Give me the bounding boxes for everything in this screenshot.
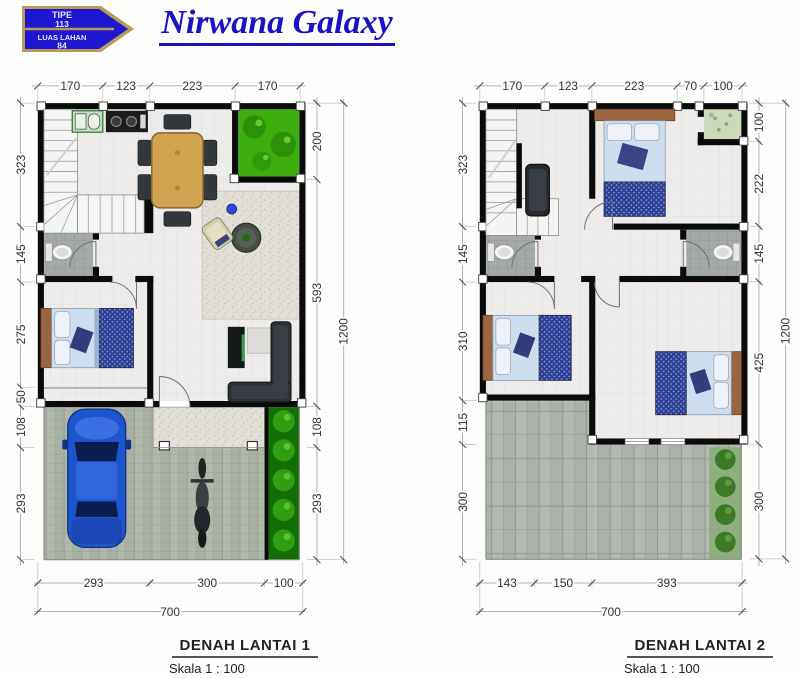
dim-label: 425 [752,352,766,372]
dining-table [152,133,203,208]
dim-label: 150 [553,576,573,590]
toilet [45,243,72,261]
bed-right [656,352,742,415]
dim-label: 223 [182,79,202,93]
dim-label: 50 [14,390,28,404]
dim-label-total: 700 [601,605,621,619]
roof-deck-left [486,401,595,560]
dim-label-total: 700 [160,605,180,619]
dim-label: 323 [456,154,470,174]
dim-label: 300 [197,576,217,590]
dim-label: 293 [310,493,324,513]
rug [247,328,271,353]
dim-label: 100 [713,79,733,93]
dim-label: 143 [497,576,517,590]
plan1-title: DENAH LANTAI 1 [172,637,319,658]
dim-label: 108 [310,417,324,437]
dim-label: 100 [274,576,294,590]
dim-label: 145 [752,243,766,263]
dim-label: 170 [502,79,522,93]
project-title: Nirwana Galaxy [146,4,408,42]
floor-plan-1: 170 123 223 170 323 145 275 50 108 293 2… [2,58,404,622]
hall-sofa [526,164,550,216]
car [62,409,131,547]
dim-label: 293 [84,576,104,590]
planter-box [704,109,741,139]
garden [238,109,299,176]
brand-badge: TIPE 113 LUAS LAHAN 84 [22,1,134,53]
dim-label: 123 [116,79,136,93]
dim-label: 170 [60,79,80,93]
toilet-left [487,243,514,261]
dim-label: 300 [456,492,470,512]
badge-luas-value: 84 [57,41,67,51]
blue-vase [227,204,237,214]
side-garden-plants [268,407,299,560]
dim-label: 200 [310,131,324,151]
dim-label-total: 1200 [779,317,793,344]
kitchen-counter [72,111,148,132]
dim-label: 323 [14,154,28,174]
toilet-right [713,243,740,261]
dim-label: 100 [752,112,766,132]
dim-label: 393 [657,576,677,590]
bed-left [483,315,571,380]
plan2-title: DENAH LANTAI 2 [627,637,774,658]
dim-label: 70 [684,79,698,93]
plan2-scale: Skala 1 : 100 [624,661,782,676]
dim-label: 222 [752,174,766,194]
dim-label: 170 [258,79,278,93]
dim-label: 310 [456,331,470,351]
plan1-scale: Skala 1 : 100 [169,661,327,676]
badge-tipe-value: 113 [55,19,69,29]
dim-label: 300 [752,491,766,511]
dim-label: 115 [456,413,470,432]
dim-label: 223 [624,79,644,93]
bed-top [595,109,675,216]
dim-label: 108 [14,417,28,437]
plan2-caption: DENAH LANTAI 2 Skala 1 : 100 [618,637,782,676]
dim-label: 145 [14,244,28,264]
floor-plan-2: 170 123 223 70 100 323 145 310 115 300 1… [444,58,800,622]
dim-label: 293 [14,493,28,513]
dim-label: 275 [14,324,28,344]
dim-label-total: 1200 [337,318,351,345]
roof-plants [709,447,741,559]
plan1-caption: DENAH LANTAI 1 Skala 1 : 100 [163,637,327,676]
dim-label: 145 [456,244,470,264]
dim-label: 593 [310,282,324,302]
bed [41,308,134,367]
living-deco-floor [202,191,299,319]
dim-label: 123 [558,79,578,93]
